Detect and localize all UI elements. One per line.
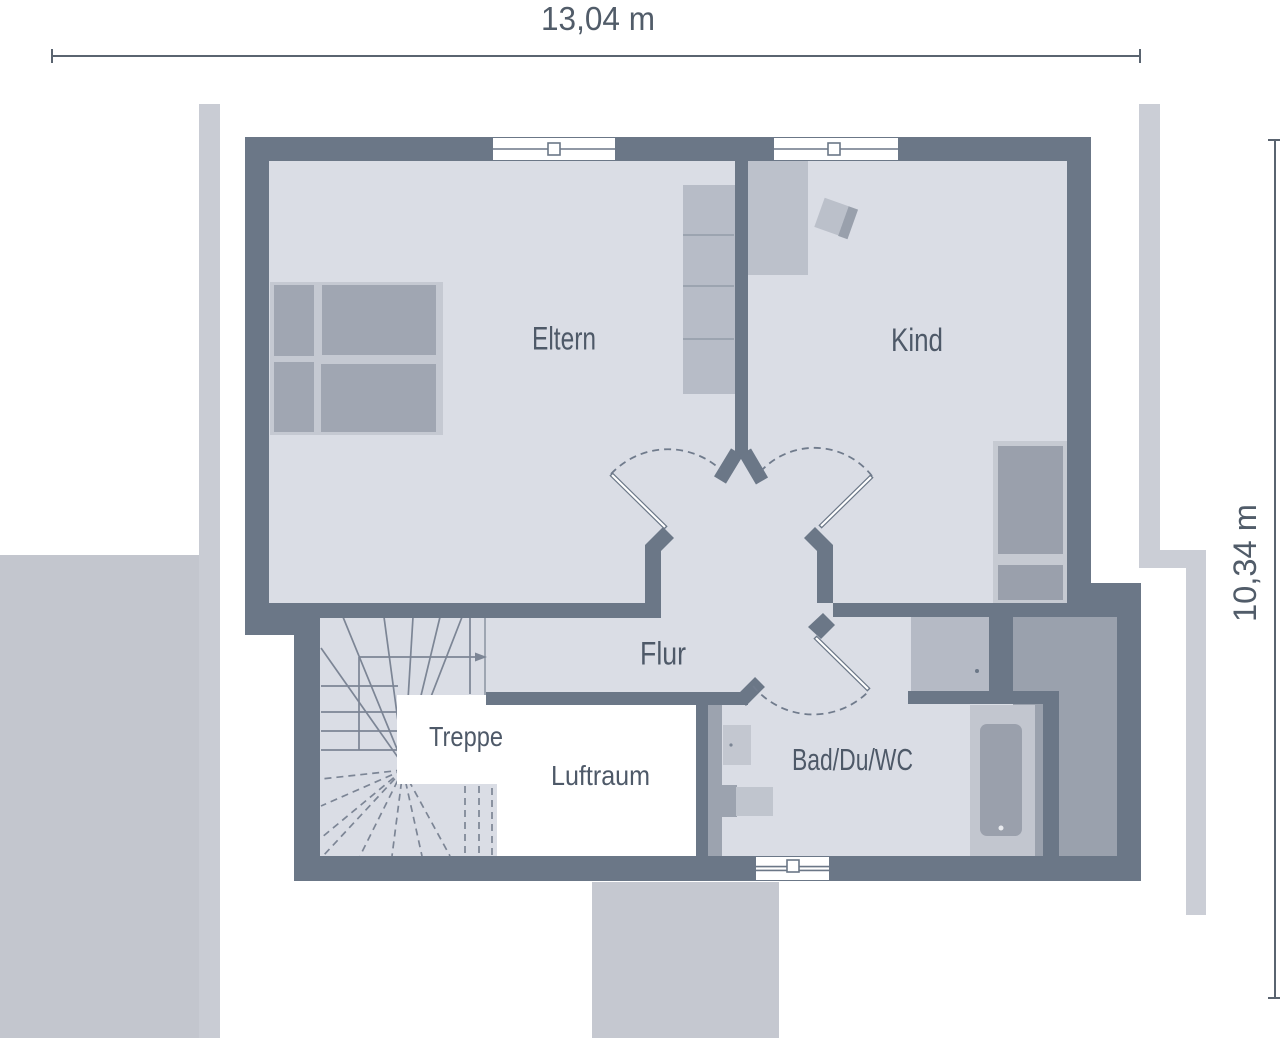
svg-text:10,34 m: 10,34 m: [1227, 504, 1263, 622]
svg-text:Treppe: Treppe: [429, 721, 503, 752]
svg-text:Flur: Flur: [640, 636, 686, 672]
svg-text:Luftraum: Luftraum: [551, 760, 650, 791]
svg-text:Eltern: Eltern: [532, 321, 596, 357]
svg-text:Bad/Du/WC: Bad/Du/WC: [792, 742, 913, 777]
svg-text:Kind: Kind: [891, 322, 943, 358]
svg-text:13,04 m: 13,04 m: [541, 0, 655, 37]
